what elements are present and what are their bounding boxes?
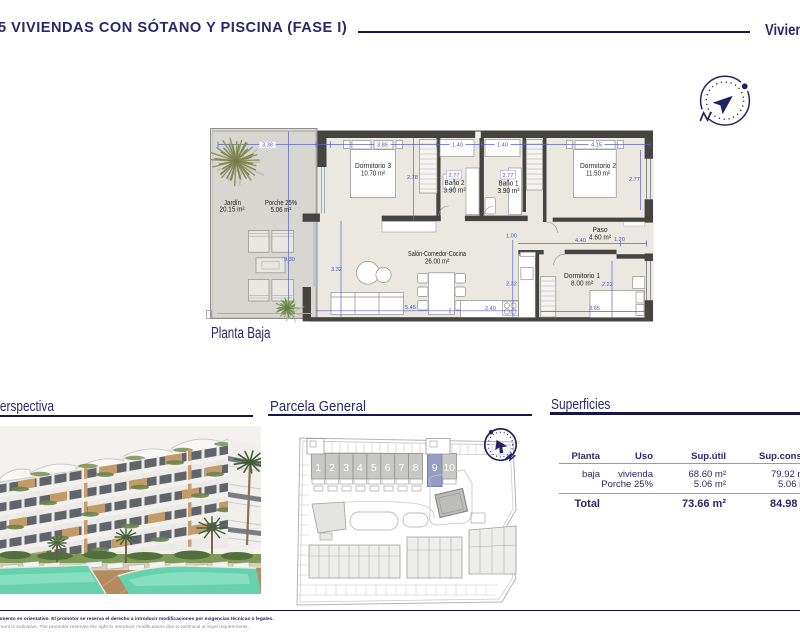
svg-text:1.00: 1.00 <box>506 234 517 240</box>
svg-text:2.22: 2.22 <box>602 282 613 288</box>
svg-text:5: 5 <box>371 462 377 474</box>
svg-text:Dormitorio 1: Dormitorio 1 <box>564 273 600 280</box>
svg-text:3.90 m²: 3.90 m² <box>498 188 521 195</box>
svg-text:5.06 m²: 5.06 m² <box>271 207 293 214</box>
svg-text:3: 3 <box>343 462 349 474</box>
svg-text:4.15: 4.15 <box>591 143 602 149</box>
svg-text:7: 7 <box>399 462 405 474</box>
svg-text:2.32: 2.32 <box>506 282 517 288</box>
svg-text:2: 2 <box>329 462 335 474</box>
svg-text:6: 6 <box>385 462 391 474</box>
svg-text:9: 9 <box>432 462 438 474</box>
svg-text:Porche 25%: Porche 25% <box>265 200 297 207</box>
svg-text:4: 4 <box>357 462 363 474</box>
svg-text:5.45: 5.45 <box>405 305 416 311</box>
svg-text:20.15 m²: 20.15 m² <box>220 206 246 213</box>
svg-text:1: 1 <box>315 462 321 474</box>
svg-text:2.40: 2.40 <box>485 306 496 312</box>
svg-text:Baño 2: Baño 2 <box>445 180 465 187</box>
svg-text:2.77: 2.77 <box>503 173 514 179</box>
svg-text:3.32: 3.32 <box>331 267 342 273</box>
svg-text:4.40: 4.40 <box>575 238 586 244</box>
svg-text:Baño 1: Baño 1 <box>499 181 519 188</box>
svg-text:8: 8 <box>413 462 419 474</box>
svg-text:11.50 m²: 11.50 m² <box>586 171 611 178</box>
svg-text:Salón-Comedor-Cocina: Salón-Comedor-Cocina <box>408 251 466 258</box>
svg-text:Paso: Paso <box>593 227 608 234</box>
svg-text:1.40: 1.40 <box>452 143 463 149</box>
svg-text:2.77: 2.77 <box>449 173 460 179</box>
svg-text:Dormitorio 3: Dormitorio 3 <box>355 163 391 170</box>
svg-text:2.77: 2.77 <box>629 177 640 183</box>
svg-text:Dormitorio 2: Dormitorio 2 <box>580 163 616 170</box>
svg-text:9.30: 9.30 <box>284 257 295 263</box>
svg-text:3.65: 3.65 <box>589 306 600 312</box>
svg-text:3.90 m²: 3.90 m² <box>444 187 467 194</box>
svg-text:1.20: 1.20 <box>614 237 625 243</box>
svg-text:4.60 m²: 4.60 m² <box>589 234 612 241</box>
svg-text:1.40: 1.40 <box>497 143 508 149</box>
svg-text:26.00 m²: 26.00 m² <box>425 259 450 266</box>
svg-text:3.85: 3.85 <box>377 143 388 149</box>
svg-text:2.78: 2.78 <box>407 175 418 181</box>
svg-text:10.70 m²: 10.70 m² <box>361 170 386 177</box>
svg-text:3.38: 3.38 <box>262 143 273 149</box>
svg-text:8.00 m²: 8.00 m² <box>571 280 594 287</box>
